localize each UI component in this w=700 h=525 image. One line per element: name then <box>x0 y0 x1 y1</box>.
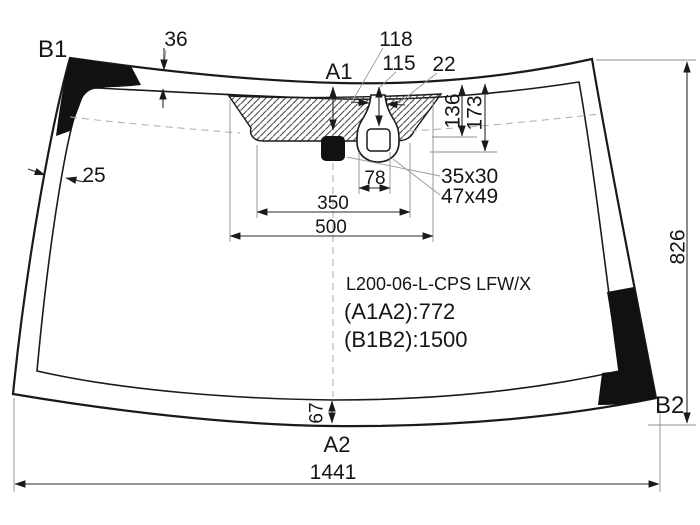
dim-118-text: 118 <box>379 28 412 51</box>
dim-25-left-arrow <box>28 169 45 175</box>
dim-22-text: 22 <box>432 53 455 76</box>
label-a2: A2 <box>324 432 351 457</box>
label-a1: A1 <box>326 59 353 84</box>
molding-dash-line-right <box>410 114 600 131</box>
ceramic-corner-bottom-right <box>598 287 656 405</box>
dim-1441-text: 1441 <box>310 461 357 484</box>
dim-67-text: 67 <box>307 402 328 423</box>
dim-47x49-text: 47x49 <box>441 185 498 208</box>
rain-sensor-window <box>367 129 390 151</box>
ceramic-corner-top-left <box>56 58 141 136</box>
molding-dash-line-left <box>70 117 240 133</box>
dim-350-text: 350 <box>317 193 349 214</box>
dim-36-text: 36 <box>164 28 187 51</box>
part-number-text: L200-06-L-CPS LFW/X <box>346 274 531 294</box>
mirror-mount-pad <box>321 136 345 161</box>
dim-25-text: 25 <box>82 164 105 187</box>
diagram-svg: B1 B2 A1 A2 36 25 118 115 22 136 173 78 … <box>0 0 700 525</box>
dim-826-text: 826 <box>666 229 689 264</box>
b1b2-length-text: (B1B2):1500 <box>344 327 468 352</box>
a1a2-length-text: (A1A2):772 <box>344 299 455 324</box>
dim-78-text: 78 <box>364 168 385 189</box>
shade-band-hatch <box>229 94 441 141</box>
dim-500-text: 500 <box>315 217 347 238</box>
label-b1: B1 <box>38 36 67 63</box>
dim-115-text: 115 <box>382 52 415 75</box>
label-b2: B2 <box>655 392 684 419</box>
dim-136-text: 136 <box>441 93 464 128</box>
windshield-diagram: B1 B2 A1 A2 36 25 118 115 22 136 173 78 … <box>0 0 700 525</box>
dim-25-right-arrow <box>66 178 84 182</box>
dim-173-text: 173 <box>463 95 486 130</box>
